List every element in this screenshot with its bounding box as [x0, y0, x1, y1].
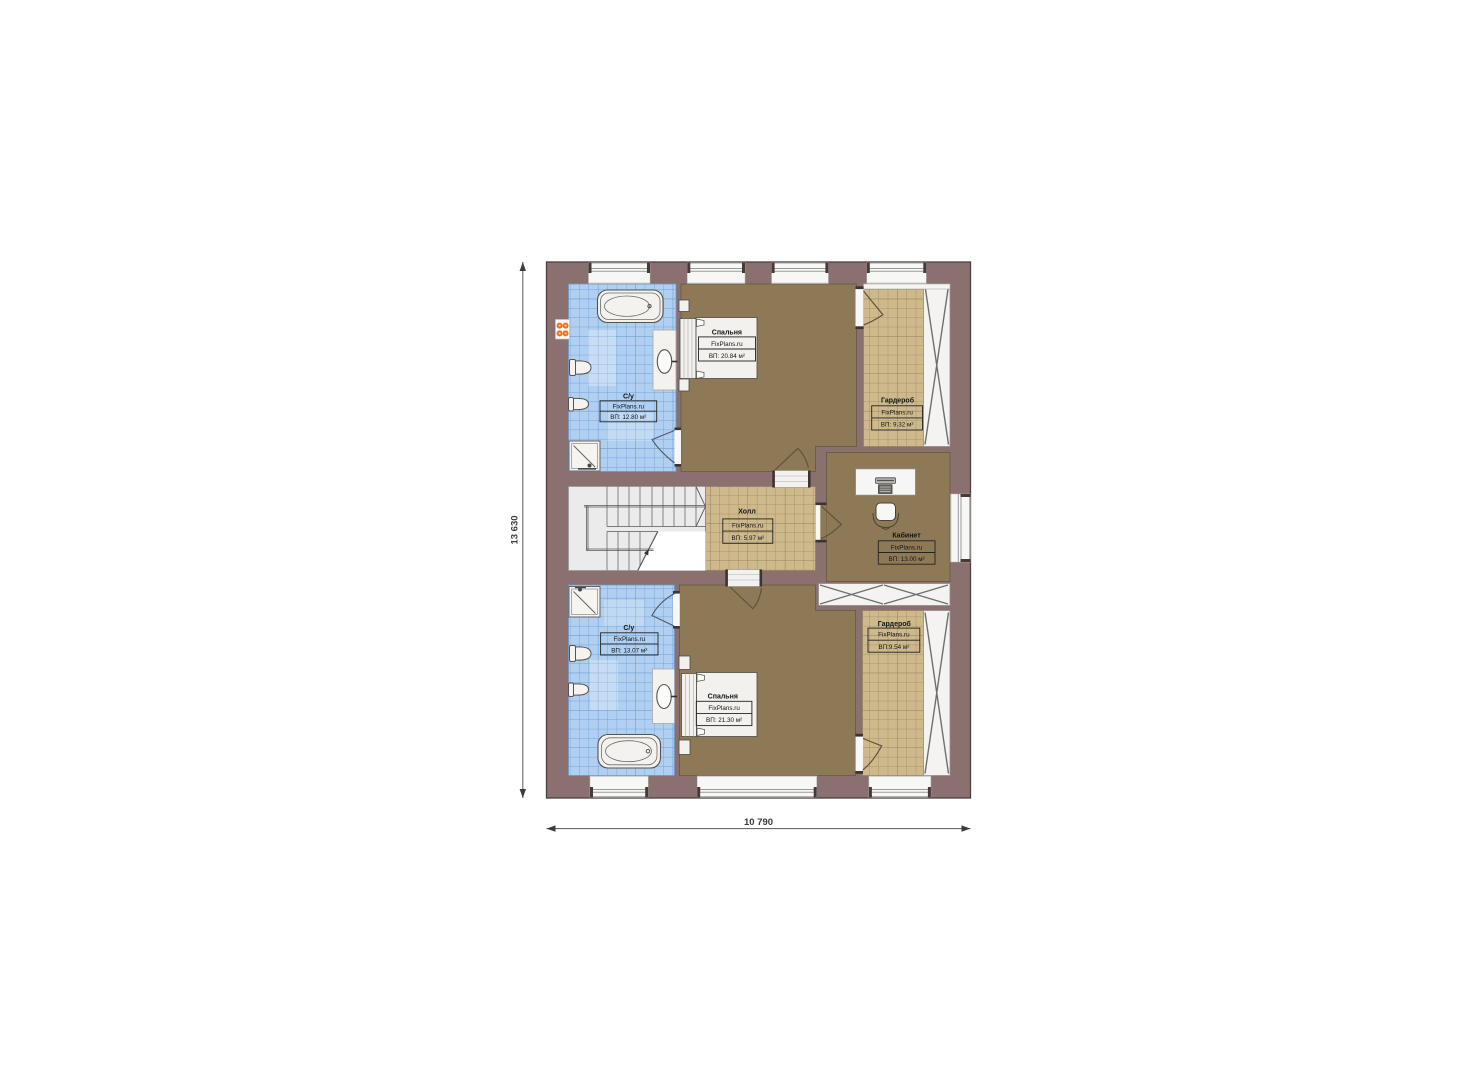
svg-text:FixPlans.ru: FixPlans.ru — [708, 705, 740, 712]
svg-text:FixPlans.ru: FixPlans.ru — [732, 523, 764, 530]
svg-text:ВП: 12.80 м²: ВП: 12.80 м² — [610, 414, 646, 421]
svg-text:Гардероб: Гардероб — [878, 620, 912, 628]
svg-text:Кабинет: Кабинет — [892, 532, 921, 540]
svg-text:10 790: 10 790 — [744, 817, 773, 828]
svg-text:Спальня: Спальня — [708, 694, 738, 701]
svg-text:ВП:9.54 м²: ВП:9.54 м² — [878, 644, 909, 651]
svg-text:ВП: 13.07 м²: ВП: 13.07 м² — [611, 647, 647, 654]
svg-text:FixPlans.ru: FixPlans.ru — [613, 404, 645, 411]
svg-text:ВП: 20.84 м²: ВП: 20.84 м² — [709, 353, 745, 360]
svg-text:FixPlans.ru: FixPlans.ru — [878, 632, 910, 639]
svg-text:13 630: 13 630 — [510, 515, 521, 544]
svg-text:FixPlans.ru: FixPlans.ru — [711, 341, 743, 348]
svg-text:С/у: С/у — [623, 394, 634, 401]
svg-text:ВП: 5.97 м²: ВП: 5.97 м² — [731, 535, 764, 542]
svg-text:Гардероб: Гардероб — [881, 397, 915, 405]
svg-text:FixPlans.ru: FixPlans.ru — [891, 544, 923, 551]
svg-text:ВП: 13.00 м²: ВП: 13.00 м² — [889, 556, 925, 563]
svg-text:FixPlans.ru: FixPlans.ru — [614, 636, 646, 643]
svg-text:С/у: С/у — [623, 625, 634, 632]
svg-text:Холл: Холл — [738, 509, 756, 516]
svg-text:Спальня: Спальня — [712, 330, 742, 337]
svg-text:ВП: 21.30 м²: ВП: 21.30 м² — [706, 717, 742, 724]
svg-text:FixPlans.ru: FixPlans.ru — [881, 409, 913, 416]
svg-text:ВП: 9.32 м²: ВП: 9.32 м² — [881, 422, 914, 429]
